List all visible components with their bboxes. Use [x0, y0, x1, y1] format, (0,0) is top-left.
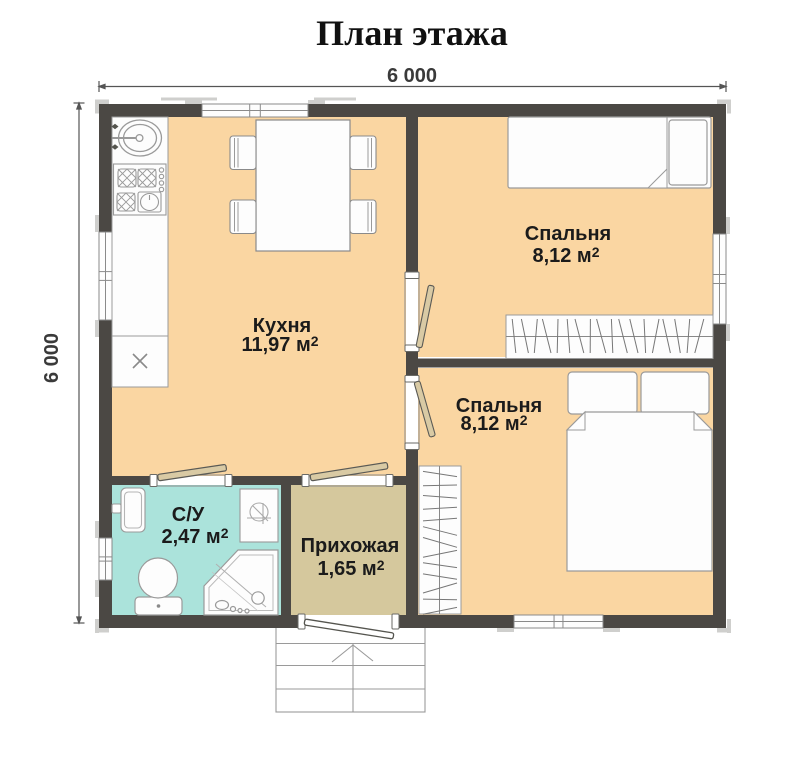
- svg-text:6 000: 6 000: [387, 65, 437, 87]
- svg-text:С/У: С/У: [172, 504, 205, 526]
- svg-text:6 000: 6 000: [41, 333, 63, 383]
- svg-text:Прихожая: Прихожая: [301, 535, 400, 557]
- svg-text:8,12 м2: 8,12 м2: [532, 244, 599, 267]
- svg-text:11,97 м2: 11,97 м2: [241, 333, 318, 356]
- svg-text:2,47 м2: 2,47 м2: [161, 525, 228, 548]
- svg-text:8,12 м2: 8,12 м2: [460, 412, 527, 435]
- svg-text:1,65 м2: 1,65 м2: [317, 557, 384, 580]
- svg-text:Спальня: Спальня: [525, 223, 611, 245]
- svg-text:План этажа: План этажа: [316, 13, 508, 53]
